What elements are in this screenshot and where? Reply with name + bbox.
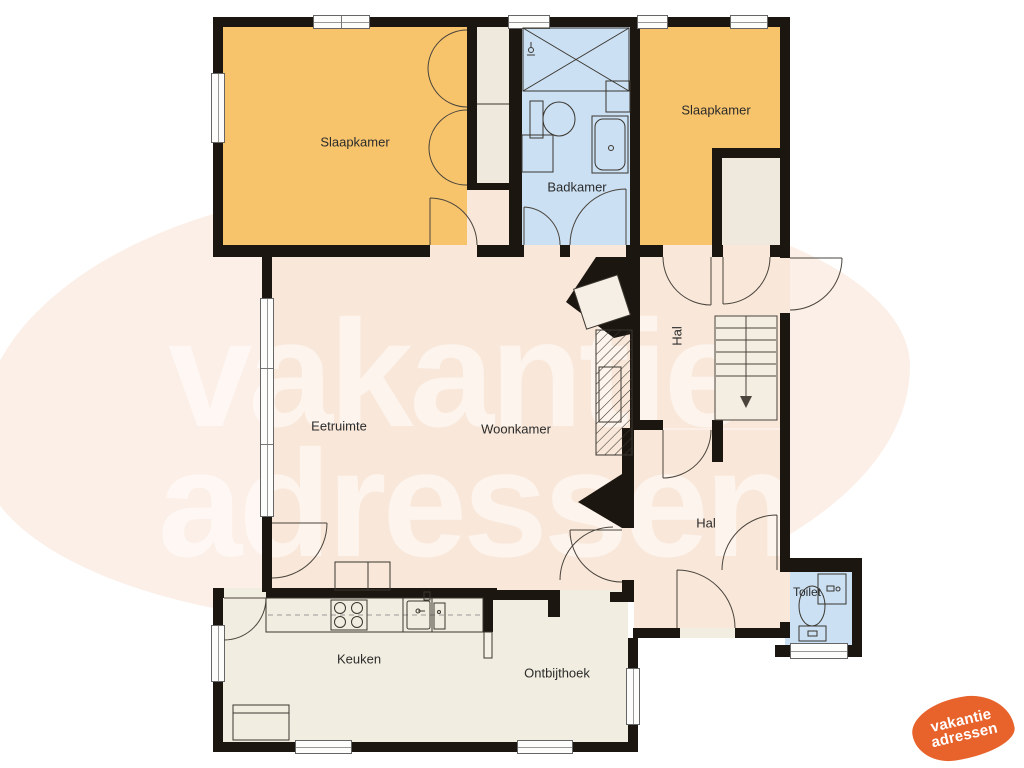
room-label-toilet: Toilet	[793, 585, 821, 599]
room-label-hal-beneden: Hal	[696, 516, 716, 531]
room-label-slaapkamer-2: Slaapkamer	[681, 103, 750, 118]
cabinet-icon	[606, 81, 630, 112]
logo-text: vakantie adressen	[927, 706, 1000, 750]
kitchen-unit	[233, 705, 289, 740]
washer-icon	[522, 135, 553, 172]
room-label-hal-boven: Hal	[670, 326, 685, 346]
sideboard	[335, 562, 390, 590]
toilet-icon	[530, 101, 543, 138]
chimney	[566, 257, 640, 528]
fixtures-layer	[0, 0, 1024, 768]
floorplan: vakantie adressen	[0, 0, 1024, 768]
bathtub-icon	[592, 116, 628, 173]
wardrobe-doors	[428, 30, 467, 185]
stairs	[715, 316, 777, 420]
room-label-badkamer: Badkamer	[547, 180, 606, 195]
badkamer-fixtures	[477, 28, 630, 173]
room-label-eetruimte: Eetruimte	[311, 419, 367, 434]
room-label-ontbijthoek: Ontbijthoek	[524, 666, 590, 681]
room-label-woonkamer: Woonkamer	[481, 422, 551, 437]
room-label-keuken: Keuken	[337, 652, 381, 667]
sink-icon	[407, 601, 430, 629]
sink-icon	[818, 574, 846, 604]
front-door	[790, 258, 842, 310]
room-label-slaapkamer-1: Slaapkamer	[320, 135, 389, 150]
